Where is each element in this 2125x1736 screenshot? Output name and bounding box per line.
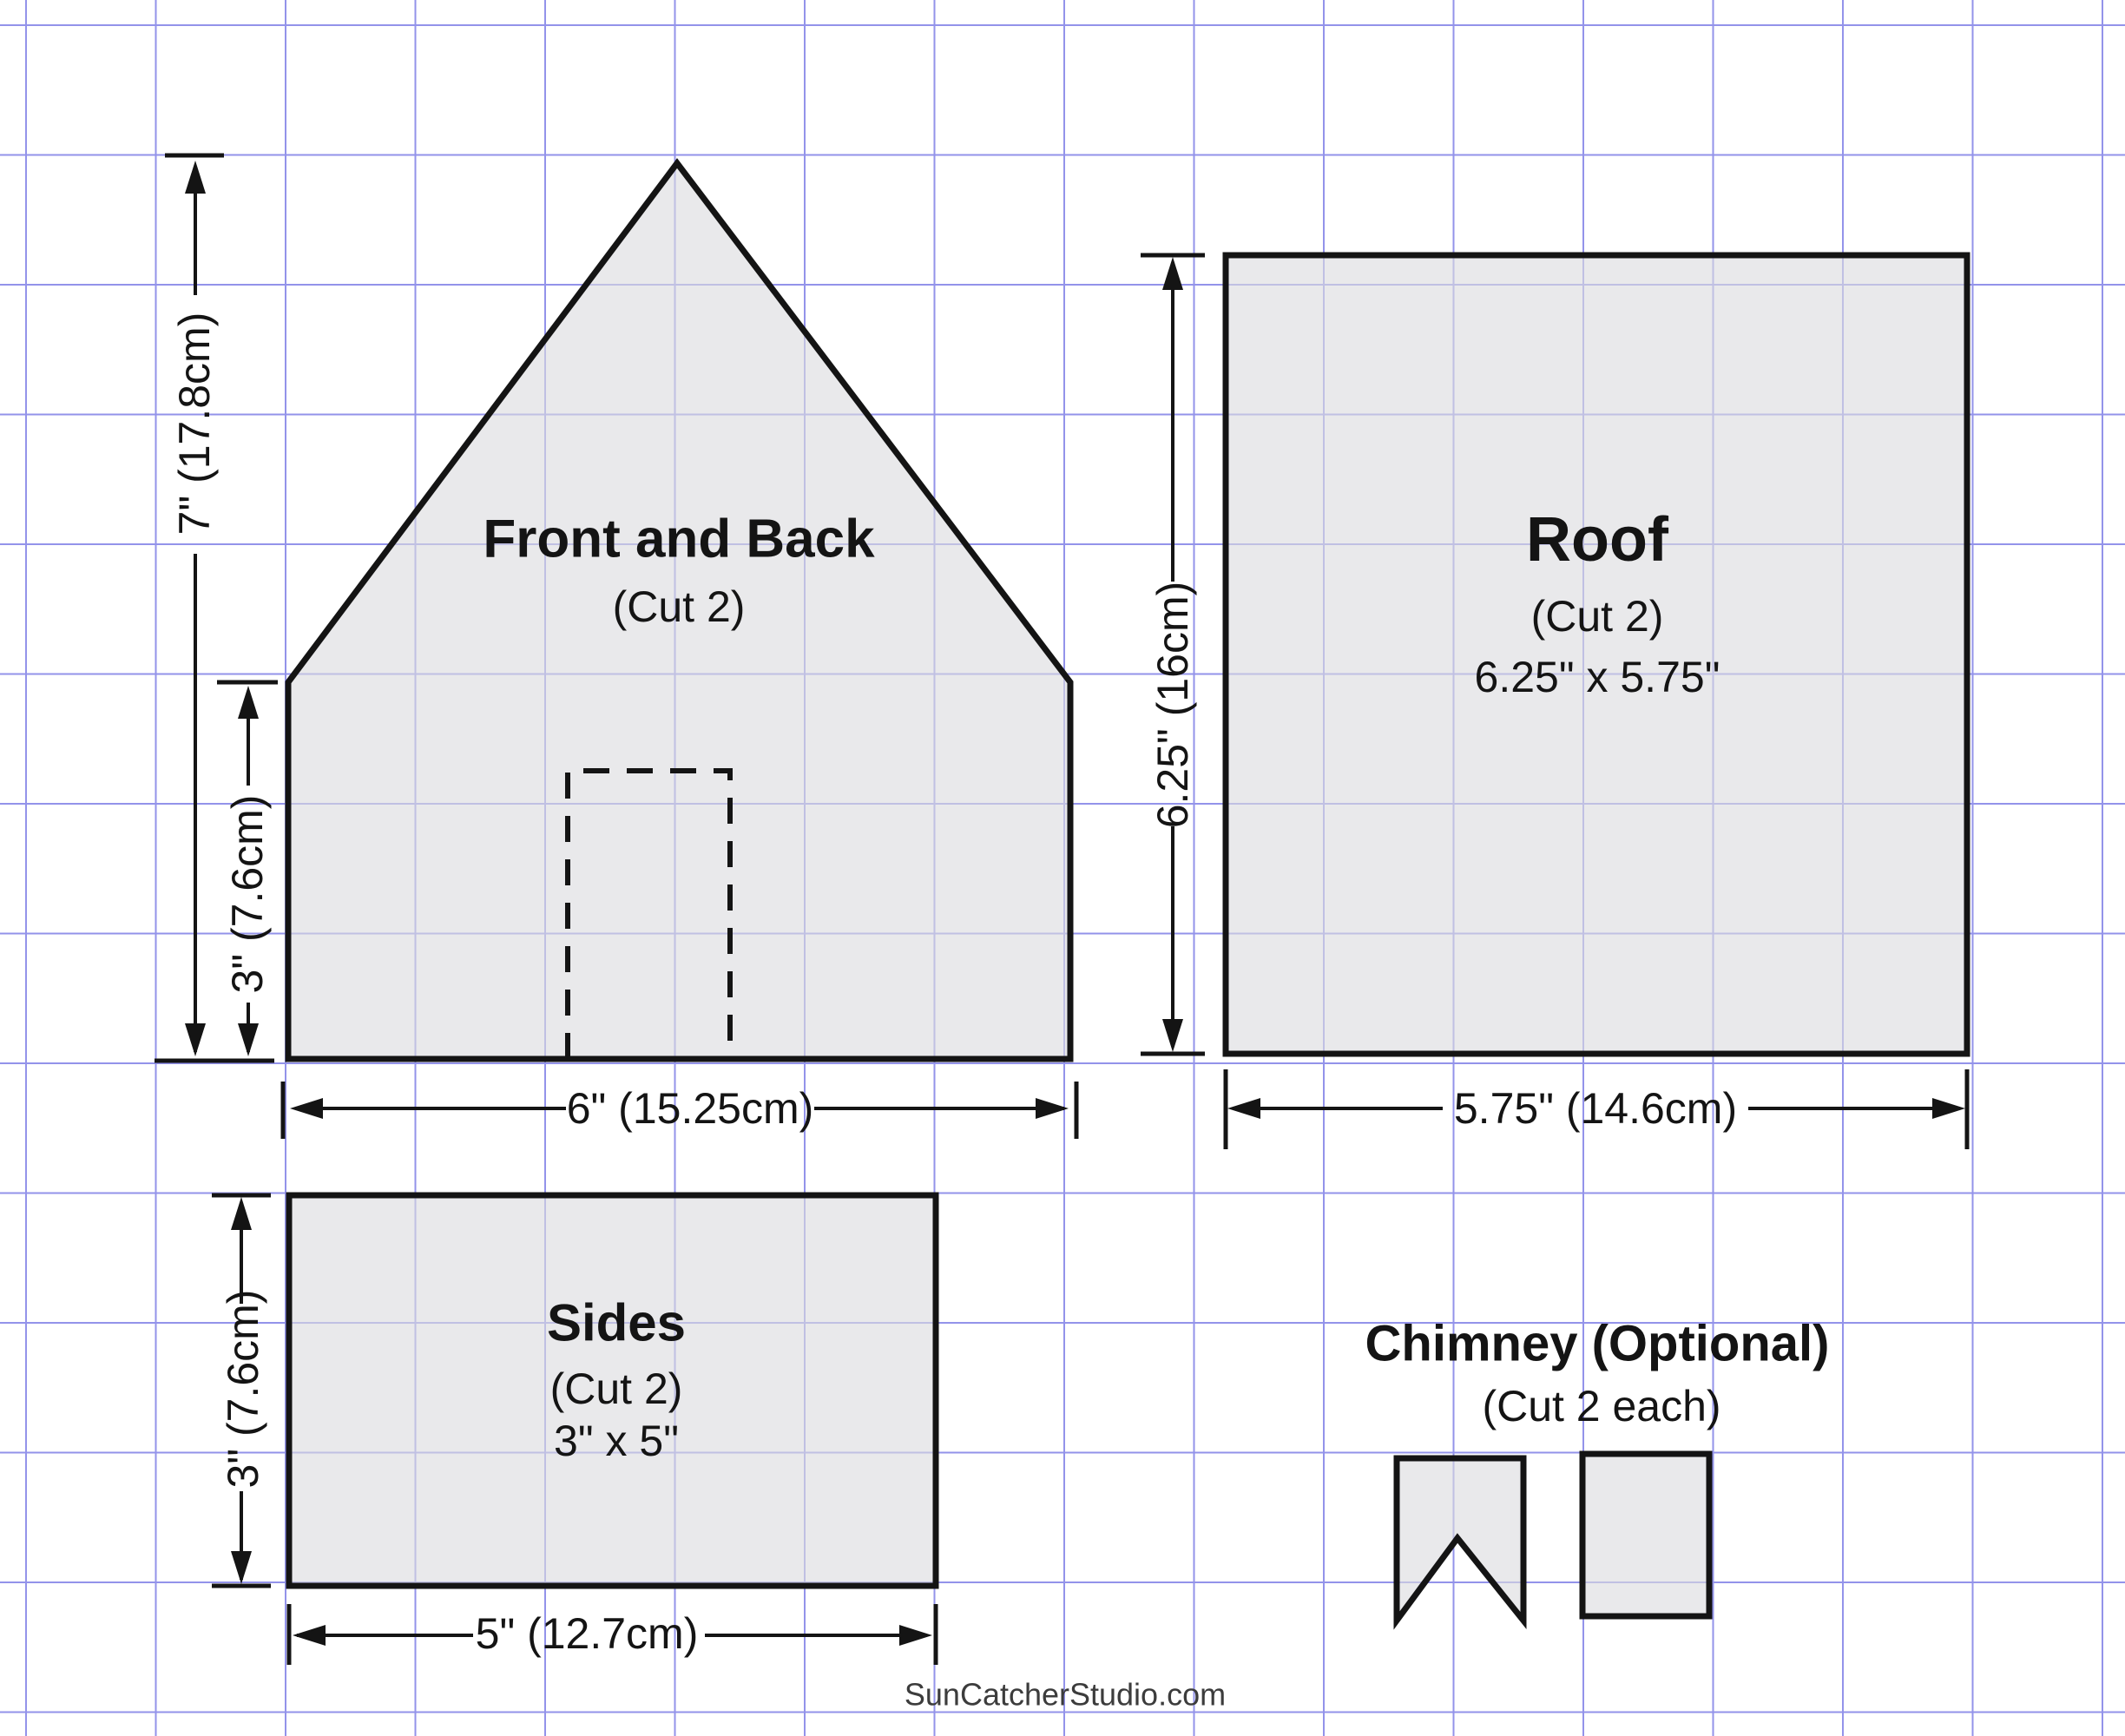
dim-side-height-label: 3" (7.6cm)	[219, 1290, 267, 1489]
roof-cut-label: (Cut 2)	[1531, 592, 1664, 641]
sides-size-label: 3" x 5"	[554, 1417, 679, 1465]
dim-roof-height-label: 6.25" (16cm)	[1148, 582, 1197, 829]
dim-front-width-label: 6" (15.25cm)	[567, 1084, 814, 1133]
roof-size-label: 6.25" x 5.75"	[1475, 653, 1720, 701]
sides-cut-label: (Cut 2)	[550, 1364, 683, 1413]
dim-side-width-label: 5" (12.7cm)	[476, 1609, 699, 1658]
chimney-plain-piece	[1582, 1454, 1709, 1616]
dim-front-height-label: 7" (17.8cm)	[170, 312, 219, 536]
dim-roof-width-label: 5.75" (14.6cm)	[1454, 1084, 1737, 1133]
dim-front-wall-label: 3" (7.6cm)	[223, 795, 272, 994]
front-back-title: Front and Back	[483, 510, 875, 569]
pattern-page: Front and Back(Cut 2)Roof(Cut 2)6.25" x …	[0, 0, 2125, 1736]
front-back-cut-label: (Cut 2)	[613, 582, 746, 631]
watermark: SunCatcherStudio.com	[905, 1677, 1226, 1713]
chimney-cut-label: (Cut 2 each)	[1482, 1382, 1720, 1430]
roof-title: Roof	[1526, 505, 1669, 575]
sides-title: Sides	[547, 1294, 686, 1352]
pattern-diagram: Front and Back(Cut 2)Roof(Cut 2)6.25" x …	[0, 0, 2125, 1736]
chimney-title: Chimney (Optional)	[1365, 1316, 1830, 1372]
